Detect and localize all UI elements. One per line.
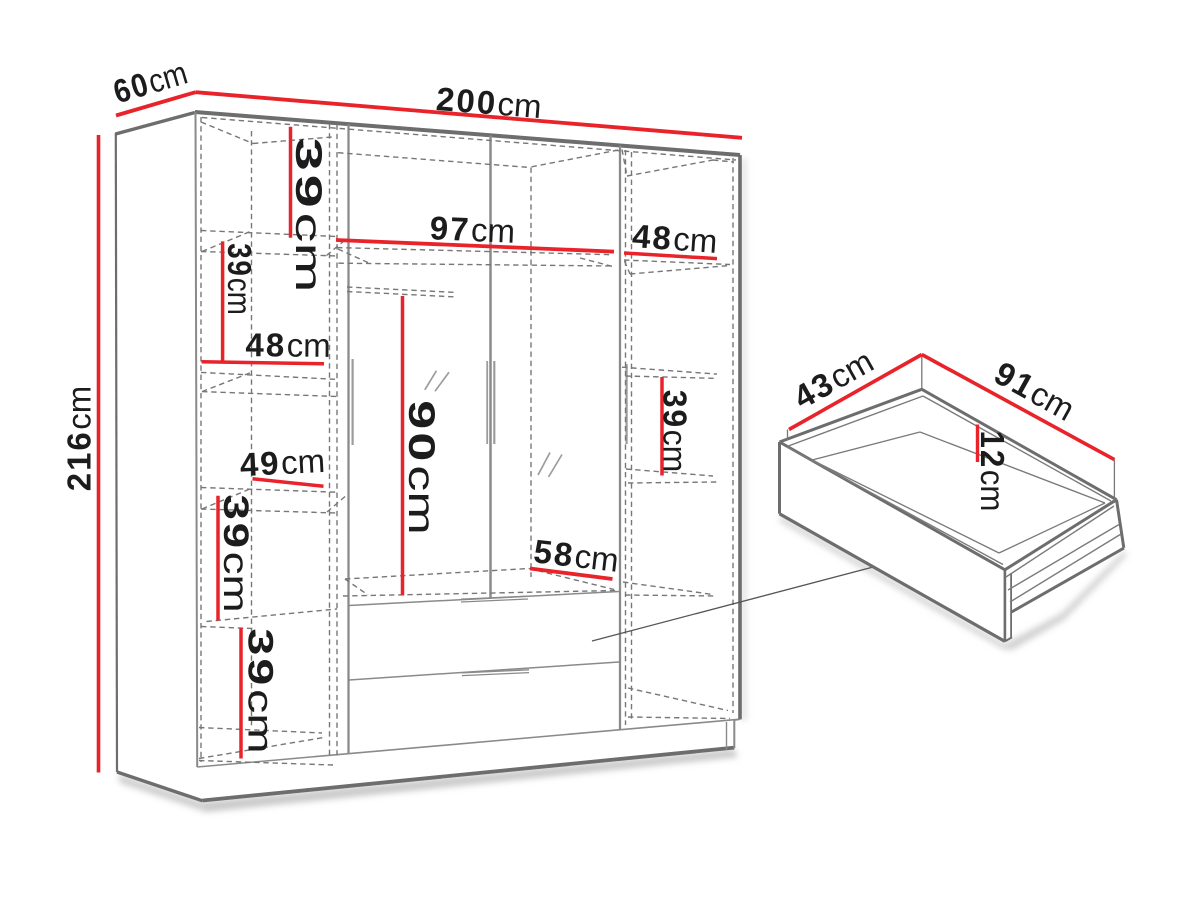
svg-text:49cm: 49cm <box>239 442 326 483</box>
svg-text:39cm: 39cm <box>656 390 693 473</box>
svg-text:48cm: 48cm <box>245 326 331 364</box>
svg-text:12cm: 12cm <box>974 431 1011 512</box>
svg-text:97cm: 97cm <box>429 209 516 250</box>
svg-text:39cm: 39cm <box>216 494 256 612</box>
svg-text:48cm: 48cm <box>631 217 719 260</box>
svg-text:90cm: 90cm <box>401 400 443 535</box>
svg-text:216cm: 216cm <box>61 386 98 492</box>
svg-text:39cm: 39cm <box>240 628 280 753</box>
svg-text:39cm: 39cm <box>288 137 330 292</box>
svg-text:39cm: 39cm <box>220 243 257 315</box>
